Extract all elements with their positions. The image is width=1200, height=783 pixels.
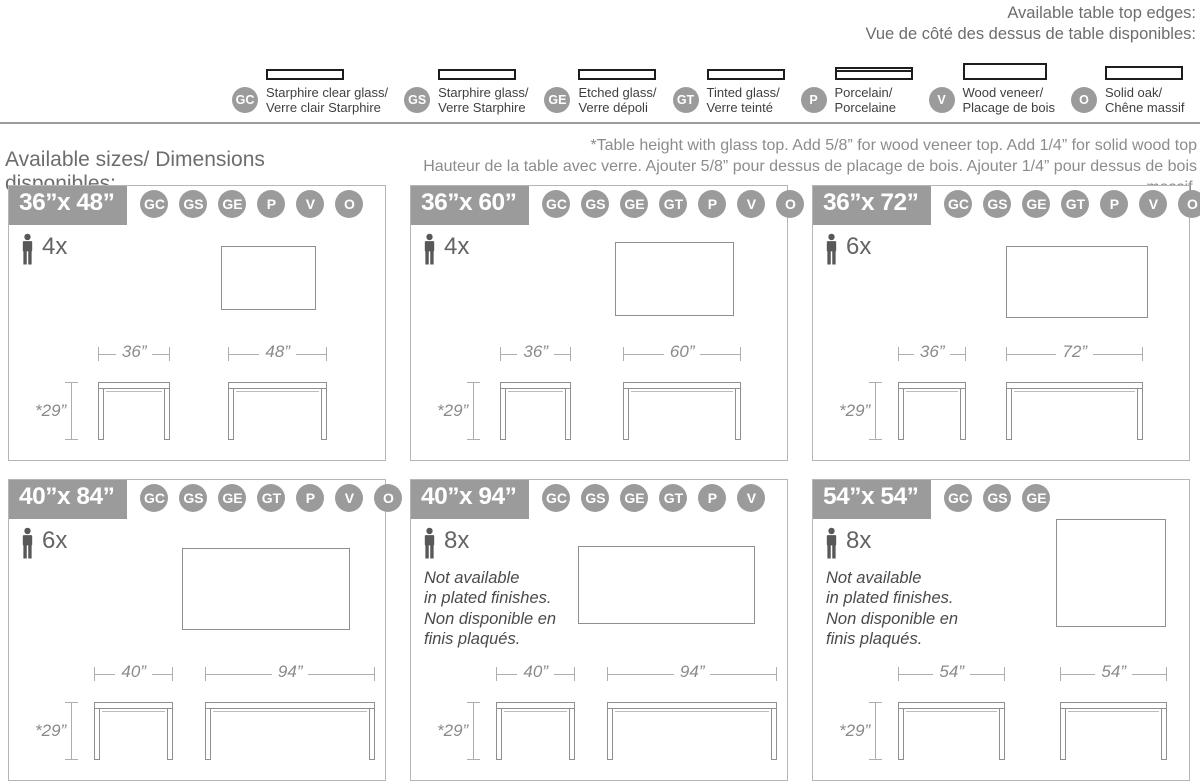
table-leg <box>999 709 1005 760</box>
table-top-side <box>623 382 741 389</box>
size-panel-36x48: 36”x 48” GCGSGEPVO 4x *29” 36” <box>8 185 386 461</box>
finish-badge-ge: GE <box>218 190 246 218</box>
person-icon <box>20 233 35 266</box>
height-dimension-line <box>473 382 474 440</box>
size-title: 40”x 84” <box>9 480 127 519</box>
table-top-plan-view <box>182 548 350 630</box>
width-dimension-label: 94” <box>674 662 711 682</box>
width-dimension: 48” <box>228 347 327 361</box>
table-top-plan-view <box>615 242 734 316</box>
seating-capacity: 4x <box>20 233 385 266</box>
capacity-count: 6x <box>846 233 871 262</box>
table-leg <box>205 709 211 760</box>
size-panel-40x94: 40”x 94” GCGSGEGTPV 8x Not available in … <box>410 479 788 781</box>
finish-badges: GCGSGEGTPVO <box>944 190 1200 218</box>
panel-header: 36”x 60” GCGSGEGTPVO <box>411 186 787 225</box>
width-dimension: 54” <box>898 667 1005 681</box>
table-leg <box>98 389 104 440</box>
height-dimension-label: *29” <box>839 721 870 741</box>
width-dimension: 36” <box>98 347 170 361</box>
edge-type-label: Wood veneer/ Placage de bois <box>963 86 1056 116</box>
width-dimension-label: 36” <box>517 342 554 362</box>
finish-badge-gs: GS <box>179 484 207 512</box>
table-leg <box>771 709 777 760</box>
table-leg <box>960 389 966 440</box>
edge-type-row: GC Starphire clear glass/ Verre clair St… <box>232 63 1185 116</box>
height-dimension: *29” <box>437 382 474 440</box>
table-leg <box>228 389 234 440</box>
size-title: 40”x 94” <box>411 480 529 519</box>
capacity-count: 6x <box>42 527 67 556</box>
finish-badge-gc: GC <box>944 484 972 512</box>
finish-badge-p: P <box>257 190 285 218</box>
height-dimension-line <box>473 702 474 760</box>
edge-type-label: Starphire clear glass/ Verre clair Starp… <box>266 86 388 116</box>
dimension-drawings: *29” 36” 72” <box>813 347 1143 440</box>
table-elevation-long: 60” <box>623 347 741 440</box>
table-top-side <box>898 382 966 389</box>
edge-type-p: P Porcelain/ Porcelaine <box>801 67 913 116</box>
dimension-drawings: *29” 40” 94” <box>411 667 777 760</box>
panel-header: 36”x 72” GCGSGEGTPVO <box>813 186 1189 225</box>
person-icon <box>20 527 35 560</box>
edge-legend-title: Available table top edges: Vue de côté d… <box>865 3 1196 45</box>
table-leg <box>1060 709 1066 760</box>
capacity-count: 8x <box>444 527 469 556</box>
width-dimension: 40” <box>496 667 575 681</box>
table-leg <box>565 389 571 440</box>
size-title: 36”x 72” <box>813 186 931 225</box>
finish-badges: GCGSGE <box>944 484 1050 512</box>
table-elevation-short: 36” <box>500 347 571 440</box>
finish-badge-v: V <box>296 190 324 218</box>
width-dimension: 72” <box>1006 347 1143 361</box>
finish-badge-gt: GT <box>1061 190 1089 218</box>
width-dimension: 40” <box>94 667 173 681</box>
person-icon <box>422 527 437 560</box>
width-dimension-label: 54” <box>1095 662 1132 682</box>
panel-header: 54”x 54” GCGSGE <box>813 480 1189 519</box>
finish-badge-p: P <box>698 190 726 218</box>
table-leg <box>898 709 904 760</box>
width-dimension: 36” <box>500 347 571 361</box>
table-top-side <box>500 382 571 389</box>
edge-type-label: Tinted glass/ Verre teinté <box>707 86 785 116</box>
width-dimension-label: 36” <box>914 342 951 362</box>
table-top-side <box>607 702 777 709</box>
finish-badge-gc: GC <box>140 484 168 512</box>
finish-badge-gc: GC <box>140 190 168 218</box>
size-title: 36”x 48” <box>9 186 127 225</box>
width-dimension: 94” <box>607 667 777 681</box>
height-dimension: *29” <box>35 702 72 760</box>
finish-badges: GCGSGEGTPVO <box>140 484 402 512</box>
edge-type-label: Solid oak/ Chêne massif <box>1105 86 1184 116</box>
edge-type-label: Etched glass/ Verre dépoli <box>578 86 656 116</box>
finish-badge-v: V <box>335 484 363 512</box>
table-top-side <box>1060 702 1167 709</box>
dimension-drawings: *29” 36” 48” <box>9 347 327 440</box>
finish-badge-gc: GC <box>232 87 258 113</box>
table-leg <box>1137 389 1143 440</box>
size-panel-36x72: 36”x 72” GCGSGEGTPVO 6x *29” 36” <box>812 185 1190 461</box>
finish-badge-v: V <box>929 87 955 113</box>
finish-badges: GCGSGEPVO <box>140 190 363 218</box>
width-dimension: 60” <box>623 347 741 361</box>
table-top-side <box>228 382 327 389</box>
finish-badge-o: O <box>1178 190 1200 218</box>
width-dimension: 54” <box>1060 667 1167 681</box>
panel-header: 36”x 48” GCGSGEPVO <box>9 186 385 225</box>
table-leg <box>500 389 506 440</box>
table-leg <box>496 709 502 760</box>
width-dimension-label: 40” <box>115 662 152 682</box>
width-dimension-label: 40” <box>517 662 554 682</box>
table-elevation-long: 72” <box>1006 347 1143 440</box>
height-dimension-label: *29” <box>35 721 66 741</box>
edge-type-label: Porcelain/ Porcelaine <box>835 86 913 116</box>
finish-badge-ge: GE <box>620 484 648 512</box>
width-dimension-label: 72” <box>1056 342 1093 362</box>
finish-badge-o: O <box>335 190 363 218</box>
table-top-side <box>94 702 173 709</box>
edge-type-ge: GE Etched glass/ Verre dépoli <box>544 69 656 116</box>
edge-type-v: V Wood veneer/ Placage de bois <box>929 63 1056 116</box>
dimension-drawings: *29” 40” 94” <box>9 667 375 760</box>
finish-badge-gt: GT <box>659 484 687 512</box>
edge-legend-section: Available table top edges: Vue de côté d… <box>0 0 1200 122</box>
edge-type-gt: GT Tinted glass/ Verre teinté <box>673 69 785 116</box>
capacity-count: 4x <box>444 233 469 262</box>
sizes-header-section: Available sizes/ Dimensions disponibles:… <box>0 124 1200 184</box>
edge-type-o: O Solid oak/ Chêne massif <box>1071 66 1184 116</box>
porcelain-edge-profile-icon <box>835 67 913 80</box>
table-top-plan-view <box>1056 519 1166 627</box>
height-dimension-label: *29” <box>437 401 468 421</box>
table-top-side <box>205 702 375 709</box>
height-dimension-line <box>71 382 72 440</box>
table-elevation-short: 40” <box>496 667 575 760</box>
finish-badge-ge: GE <box>218 484 246 512</box>
table-leg <box>735 389 741 440</box>
table-elevation-long: 94” <box>205 667 375 760</box>
edge-legend-title-fr: Vue de côté des dessus de table disponib… <box>865 24 1196 45</box>
size-title: 36”x 60” <box>411 186 529 225</box>
person-icon <box>422 233 437 266</box>
table-leg <box>1006 389 1012 440</box>
edge-type-gs: GS Starphire glass/ Verre Starphire <box>404 69 528 116</box>
height-dimension-label: *29” <box>437 721 468 741</box>
finish-badge-gs: GS <box>983 190 1011 218</box>
finish-badge-gs: GS <box>404 87 430 113</box>
person-icon <box>824 233 839 266</box>
height-dimension-line <box>71 702 72 760</box>
edge-legend-title-en: Available table top edges: <box>865 3 1196 24</box>
table-elevation-long: 54” <box>1060 667 1167 760</box>
height-dimension-line <box>875 382 876 440</box>
table-top-plan-view <box>1006 246 1148 318</box>
table-leg <box>607 709 613 760</box>
size-title: 54”x 54” <box>813 480 931 519</box>
glass-edge-profile-icon <box>266 69 344 80</box>
height-dimension: *29” <box>35 382 72 440</box>
table-leg <box>1161 709 1167 760</box>
height-dimension: *29” <box>437 702 474 760</box>
table-elevation-short: 54” <box>898 667 1005 760</box>
finish-badge-gs: GS <box>983 484 1011 512</box>
width-dimension-label: 60” <box>664 342 701 362</box>
capacity-count: 4x <box>42 233 67 262</box>
table-leg <box>569 709 575 760</box>
height-dimension: *29” <box>839 382 876 440</box>
width-dimension-label: 94” <box>272 662 309 682</box>
finish-badge-gs: GS <box>581 190 609 218</box>
person-icon <box>824 527 839 560</box>
height-dimension-label: *29” <box>35 401 66 421</box>
edge-type-label: Starphire glass/ Verre Starphire <box>438 86 528 116</box>
table-leg <box>369 709 375 760</box>
oak-edge-profile-icon <box>1105 66 1183 80</box>
finish-badge-ge: GE <box>620 190 648 218</box>
width-dimension: 94” <box>205 667 375 681</box>
finish-badge-gt: GT <box>659 190 687 218</box>
finish-badge-v: V <box>1139 190 1167 218</box>
finish-badges: GCGSGEGTPV <box>542 484 765 512</box>
width-dimension: 36” <box>898 347 966 361</box>
finish-badge-gt: GT <box>673 87 699 113</box>
table-elevation-long: 48” <box>228 347 327 440</box>
finish-badge-gs: GS <box>179 190 207 218</box>
finish-badge-gc: GC <box>542 484 570 512</box>
table-elevation-short: 40” <box>94 667 173 760</box>
finish-badge-v: V <box>737 190 765 218</box>
table-elevation-short: 36” <box>898 347 966 440</box>
table-elevation-long: 94” <box>607 667 777 760</box>
finish-badge-v: V <box>737 484 765 512</box>
finish-badge-o: O <box>1071 87 1097 113</box>
finish-badge-p: P <box>801 87 827 113</box>
finish-badge-ge: GE <box>1022 190 1050 218</box>
finish-badge-gt: GT <box>257 484 285 512</box>
width-dimension-label: 54” <box>933 662 970 682</box>
size-panel-40x84: 40”x 84” GCGSGEGTPVO 6x *29” 40” <box>8 479 386 781</box>
table-top-side <box>1006 382 1143 389</box>
finish-badge-o: O <box>374 484 402 512</box>
table-top-side <box>898 702 1005 709</box>
finish-badge-gs: GS <box>581 484 609 512</box>
table-leg <box>94 709 100 760</box>
size-panel-36x60: 36”x 60” GCGSGEGTPVO 4x *29” 36” <box>410 185 788 461</box>
height-dimension-line <box>875 702 876 760</box>
plated-finish-note: Not available in plated finishes. Non di… <box>424 568 556 650</box>
glass-edge-profile-icon <box>707 69 785 80</box>
finish-badge-ge: GE <box>544 87 570 113</box>
table-top-plan-view <box>578 546 755 624</box>
size-panels-grid: 36”x 48” GCGSGEPVO 4x *29” 36” <box>0 184 1200 781</box>
finish-badge-p: P <box>1100 190 1128 218</box>
table-top-side <box>98 382 170 389</box>
plated-finish-note: Not available in plated finishes. Non di… <box>826 568 958 650</box>
finish-badge-p: P <box>698 484 726 512</box>
panel-header: 40”x 84” GCGSGEGTPVO <box>9 480 385 519</box>
dimension-drawings: *29” 36” 60” <box>411 347 741 440</box>
height-dimension-label: *29” <box>839 401 870 421</box>
table-leg <box>321 389 327 440</box>
finish-badges: GCGSGEGTPVO <box>542 190 804 218</box>
glass-edge-profile-icon <box>438 69 516 80</box>
height-dimension: *29” <box>839 702 876 760</box>
veneer-edge-profile-icon <box>963 63 1047 80</box>
finish-badge-ge: GE <box>1022 484 1050 512</box>
finish-badge-p: P <box>296 484 324 512</box>
finish-badge-gc: GC <box>944 190 972 218</box>
edge-type-gc: GC Starphire clear glass/ Verre clair St… <box>232 69 388 116</box>
table-leg <box>167 709 173 760</box>
finish-badge-o: O <box>776 190 804 218</box>
panel-header: 40”x 94” GCGSGEGTPV <box>411 480 787 519</box>
finish-badge-gc: GC <box>542 190 570 218</box>
table-top-plan-view <box>221 246 316 310</box>
table-top-side <box>496 702 575 709</box>
table-leg <box>623 389 629 440</box>
table-elevation-short: 36” <box>98 347 170 440</box>
glass-edge-profile-icon <box>578 69 656 80</box>
table-leg <box>898 389 904 440</box>
capacity-count: 8x <box>846 527 871 556</box>
size-panel-54x54: 54”x 54” GCGSGE 8x Not available in plat… <box>812 479 1190 781</box>
width-dimension-label: 48” <box>259 342 296 362</box>
table-leg <box>164 389 170 440</box>
width-dimension-label: 36” <box>116 342 153 362</box>
dimension-drawings: *29” 54” 54” <box>813 667 1167 760</box>
